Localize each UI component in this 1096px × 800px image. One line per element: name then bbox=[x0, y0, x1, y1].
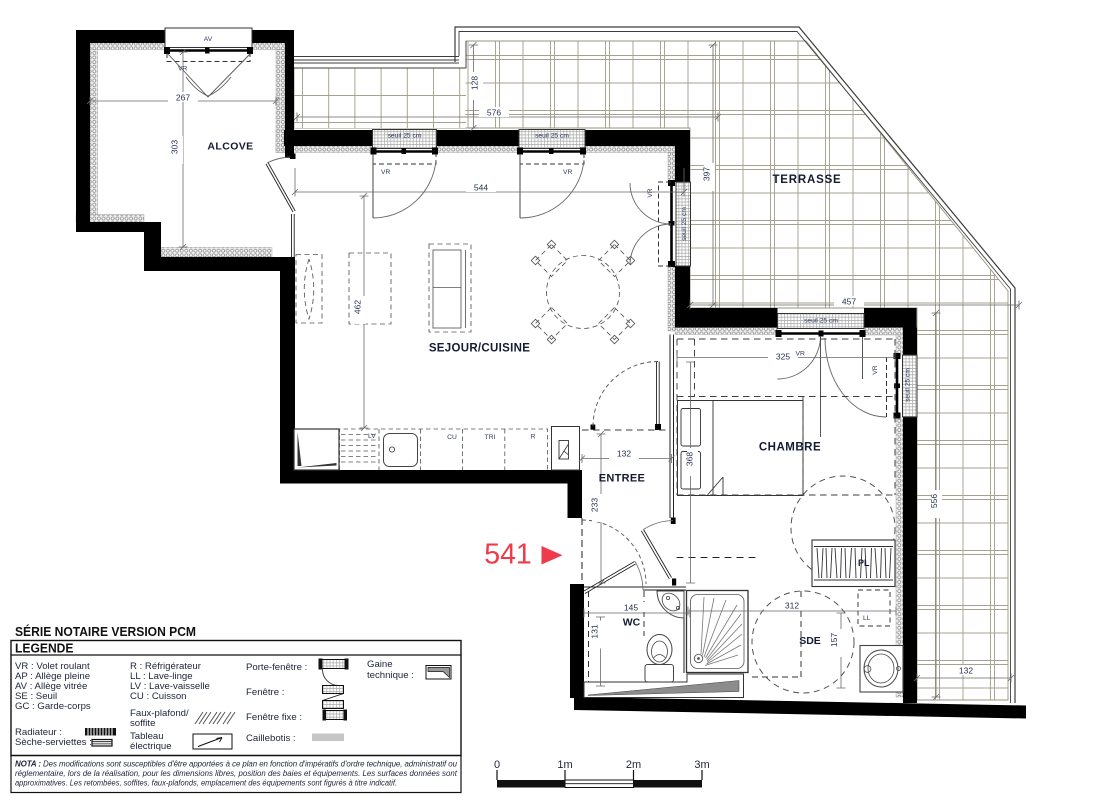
svg-text:VR: VR bbox=[647, 188, 654, 197]
svg-text:462: 462 bbox=[353, 300, 363, 314]
svg-text:VR: VR bbox=[563, 169, 572, 176]
svg-text:368: 368 bbox=[685, 452, 695, 466]
svg-text:457: 457 bbox=[842, 297, 856, 307]
svg-text:132: 132 bbox=[959, 666, 973, 676]
svg-text:NOTA : Des modifications sont: NOTA : Des modifications sont susceptibl… bbox=[15, 760, 458, 769]
svg-text:seuil 25 cm: seuil 25 cm bbox=[804, 318, 838, 325]
svg-text:Caillebotis :: Caillebotis : bbox=[246, 733, 296, 744]
svg-text:145: 145 bbox=[624, 603, 638, 613]
svg-text:seuil 25 cm: seuil 25 cm bbox=[535, 133, 569, 140]
svg-text:TRI: TRI bbox=[485, 434, 496, 441]
svg-text:CU: CU bbox=[447, 434, 457, 441]
svg-text:LV: LV bbox=[368, 433, 376, 440]
svg-text:CU : Cuisson: CU : Cuisson bbox=[130, 691, 187, 702]
svg-text:544: 544 bbox=[474, 183, 488, 193]
svg-text:Sèche-serviettes :: Sèche-serviettes : bbox=[15, 737, 92, 748]
svg-text:GC : Garde-corps: GC : Garde-corps bbox=[15, 701, 91, 712]
svg-text:132: 132 bbox=[617, 449, 631, 459]
svg-text:WC: WC bbox=[623, 617, 641, 629]
svg-text:267: 267 bbox=[176, 93, 190, 103]
svg-text:Fenêtre fixe :: Fenêtre fixe : bbox=[246, 712, 302, 723]
svg-text:ENTREE: ENTREE bbox=[599, 473, 645, 485]
svg-text:réglementaire, lors de la réal: réglementaire, lors de la réalisation, p… bbox=[15, 769, 458, 778]
svg-text:131: 131 bbox=[590, 624, 600, 638]
svg-text:576: 576 bbox=[487, 108, 501, 118]
svg-text:CHAMBRE: CHAMBRE bbox=[759, 442, 821, 454]
svg-text:325: 325 bbox=[776, 352, 790, 362]
svg-text:LL: LL bbox=[863, 615, 871, 622]
svg-text:0: 0 bbox=[494, 759, 500, 771]
svg-text:Gaine: Gaine bbox=[367, 659, 393, 670]
svg-text:128: 128 bbox=[470, 76, 480, 90]
svg-text:Porte-fenêtre :: Porte-fenêtre : bbox=[246, 662, 307, 673]
svg-text:électrique: électrique bbox=[130, 741, 172, 752]
svg-text:AV: AV bbox=[204, 36, 213, 43]
svg-text:R: R bbox=[531, 434, 536, 441]
svg-text:ALCOVE: ALCOVE bbox=[207, 141, 253, 153]
svg-text:541: 541 bbox=[484, 539, 532, 571]
svg-text:VR: VR bbox=[796, 351, 805, 358]
svg-text:SDE: SDE bbox=[799, 635, 821, 647]
svg-text:PL: PL bbox=[858, 558, 870, 568]
svg-text:TERRASSE: TERRASSE bbox=[772, 174, 841, 186]
svg-text:Fenêtre :: Fenêtre : bbox=[246, 687, 284, 698]
svg-text:397: 397 bbox=[702, 167, 712, 181]
svg-text:312: 312 bbox=[785, 601, 799, 611]
svg-text:soffite: soffite bbox=[130, 718, 155, 729]
svg-text:technique :: technique : bbox=[367, 670, 414, 681]
svg-text:seuil 25 cm: seuil 25 cm bbox=[388, 133, 422, 140]
svg-text:seuil 25 cm: seuil 25 cm bbox=[681, 207, 688, 241]
svg-text:2m: 2m bbox=[626, 759, 641, 771]
svg-text:SÉRIE NOTAIRE VERSION PCM: SÉRIE NOTAIRE VERSION PCM bbox=[15, 624, 196, 639]
svg-text:233: 233 bbox=[590, 498, 600, 512]
svg-text:1m: 1m bbox=[557, 759, 572, 771]
svg-text:556: 556 bbox=[929, 494, 939, 508]
svg-text:303: 303 bbox=[170, 140, 180, 154]
svg-text:VR: VR bbox=[381, 169, 390, 176]
svg-text:VR: VR bbox=[872, 365, 879, 374]
svg-text:157: 157 bbox=[829, 633, 839, 647]
svg-text:approximatives. Les retombées,: approximatives. Les retombées, soffites,… bbox=[15, 779, 397, 788]
svg-text:seuil 25 cm: seuil 25 cm bbox=[905, 368, 912, 402]
svg-text:LEGENDE: LEGENDE bbox=[15, 641, 74, 656]
svg-text:SEJOUR/CUISINE: SEJOUR/CUISINE bbox=[429, 343, 530, 355]
svg-text:3m: 3m bbox=[694, 759, 709, 771]
